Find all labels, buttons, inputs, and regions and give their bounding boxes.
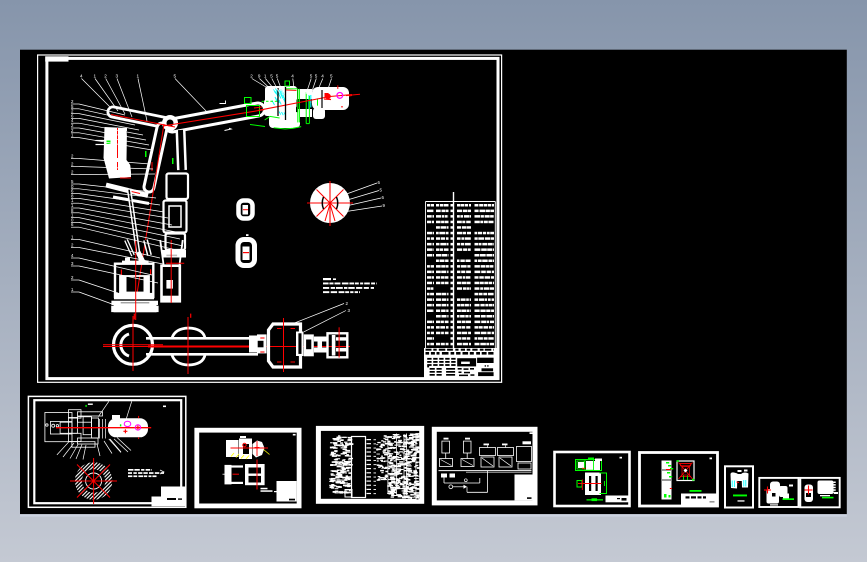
svg-text:2: 2 bbox=[250, 74, 253, 79]
svg-text:5: 5 bbox=[330, 74, 333, 79]
svg-text:4: 4 bbox=[80, 74, 83, 79]
svg-text:9: 9 bbox=[258, 74, 261, 79]
svg-text:3: 3 bbox=[116, 74, 119, 79]
svg-text:5: 5 bbox=[276, 74, 279, 79]
svg-text:5: 5 bbox=[270, 74, 273, 79]
svg-text:5: 5 bbox=[310, 74, 313, 79]
svg-text:1: 1 bbox=[264, 74, 267, 79]
svg-text:5: 5 bbox=[315, 74, 318, 79]
svg-text:2: 2 bbox=[104, 74, 107, 79]
svg-text:4: 4 bbox=[321, 74, 324, 79]
svg-text:4: 4 bbox=[291, 74, 294, 79]
svg-text:5: 5 bbox=[174, 74, 177, 79]
svg-text:1: 1 bbox=[137, 74, 140, 79]
svg-text:1: 1 bbox=[94, 74, 97, 79]
